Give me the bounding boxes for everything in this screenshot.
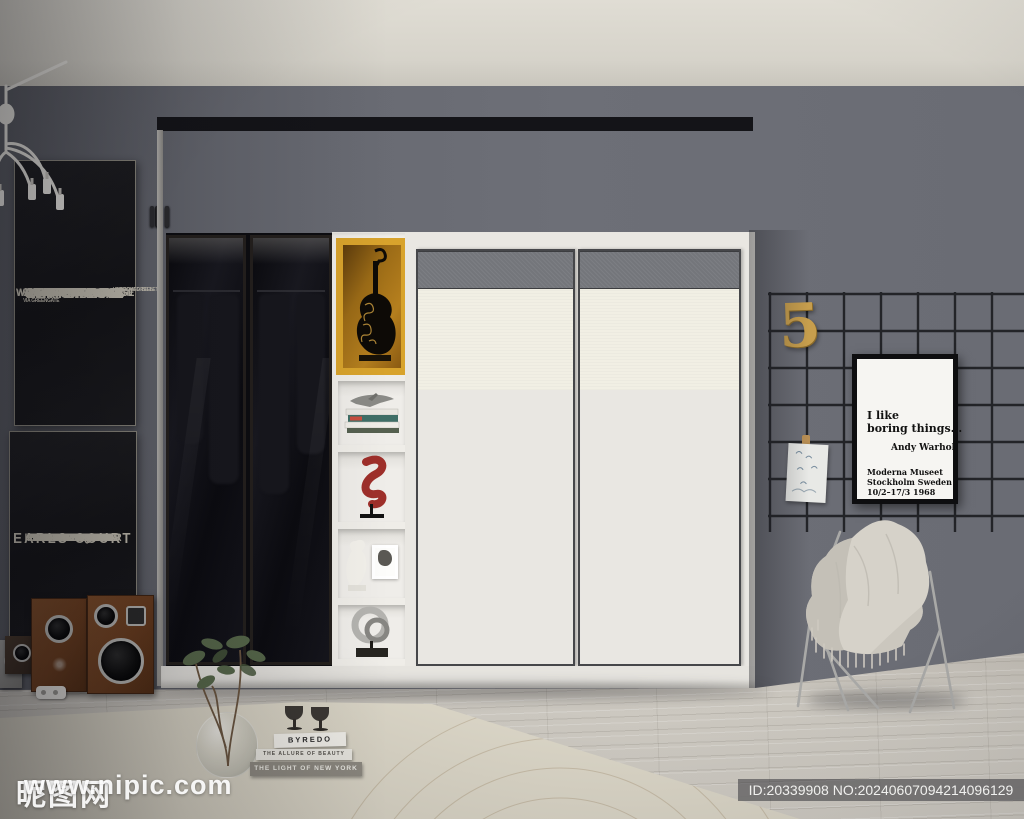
red-eight-sculpture: [348, 454, 396, 520]
image-id-bar: ID:20339908 NO:20240607094214096129: [738, 779, 1024, 801]
hanger-rod: [173, 290, 240, 292]
interior-scene: 5 I like boring things... Andy Warhol Mo…: [0, 0, 1024, 819]
poster-line: boring things...: [867, 422, 962, 435]
portrait-photo: [378, 550, 392, 566]
subwoofer-port: [45, 615, 73, 643]
cabinet-handle: [150, 206, 154, 227]
white-cat-figurine: [340, 535, 374, 595]
interior-light: [253, 238, 329, 264]
cabinet-top-shadow: [157, 117, 753, 131]
cabinet-handle: [165, 206, 169, 227]
station-line: WHIPPS CROSS: [25, 286, 125, 301]
sliding-door-wardrobe: [405, 233, 755, 670]
ceiling: [0, 0, 1024, 86]
goblet-cup: [283, 706, 305, 732]
warhol-quote-poster: I like boring things... Andy Warhol Mode…: [852, 354, 958, 504]
pod-button: [41, 690, 46, 695]
sliding-door-right: [578, 249, 741, 666]
hanging-garment: [209, 294, 239, 484]
book-light-of-new-york: THE LIGHT OF NEW YORK: [250, 762, 362, 776]
chandelier: [0, 56, 112, 246]
shelf-figurine-compartment: [338, 529, 406, 598]
brand-logo: [52, 657, 67, 672]
speaker-driver: [13, 644, 31, 662]
open-shelf-column: [332, 233, 412, 669]
shelf-books-and-plane: [340, 389, 404, 443]
door-band: [418, 251, 573, 289]
subwoofer: [31, 598, 87, 692]
bookshelf-speaker: [87, 595, 154, 694]
violin-art: [349, 247, 397, 367]
book-allure-of-beauty: THE ALLURE OF BEAUTY: [256, 749, 352, 760]
shelf-sculpture-compartment: [338, 452, 406, 522]
tweeter: [126, 606, 146, 626]
book-spine-title: THE ALLURE OF BEAUTY: [263, 752, 345, 757]
sliding-door-left: [416, 249, 575, 666]
small-photo-frame: [372, 545, 398, 579]
shelf-metal-sculpture-compartment: [338, 605, 406, 659]
poster-dates: 10/2–17/3 1968: [867, 487, 935, 497]
woofer: [98, 638, 144, 684]
speaker-control-pod: [36, 686, 66, 699]
book-spine-title: BYREDO: [288, 736, 332, 745]
poster-line: I like: [867, 409, 899, 422]
door-band: [580, 251, 739, 289]
midrange-driver: [94, 604, 118, 628]
interior-light: [169, 238, 243, 264]
image-id-text: ID:20339908 NO:20240607094214096129: [749, 782, 1014, 798]
goblet-cup: [309, 707, 331, 733]
book-spine-title: THE LIGHT OF NEW YORK: [254, 766, 358, 773]
silver-ring-sculpture: [344, 605, 400, 659]
poster-author: Andy Warhol: [891, 443, 955, 453]
hanger-rod: [257, 290, 325, 292]
hanging-garment: [259, 294, 289, 494]
shelf-books-compartment: [338, 381, 406, 445]
book-byredo: BYREDO: [274, 732, 346, 748]
station-line: EARLS COURT: [13, 531, 133, 546]
poster-city: Stockholm Sweden: [867, 477, 952, 487]
pod-button: [53, 690, 58, 695]
watermark-site-url: www.nipic.com: [24, 770, 233, 801]
wardrobe-top-cabinets: [161, 130, 749, 233]
poster-venue: Moderna Museet: [867, 467, 943, 477]
yellow-display-niche: [336, 238, 408, 375]
wire-chair-with-blanket: [782, 510, 972, 715]
